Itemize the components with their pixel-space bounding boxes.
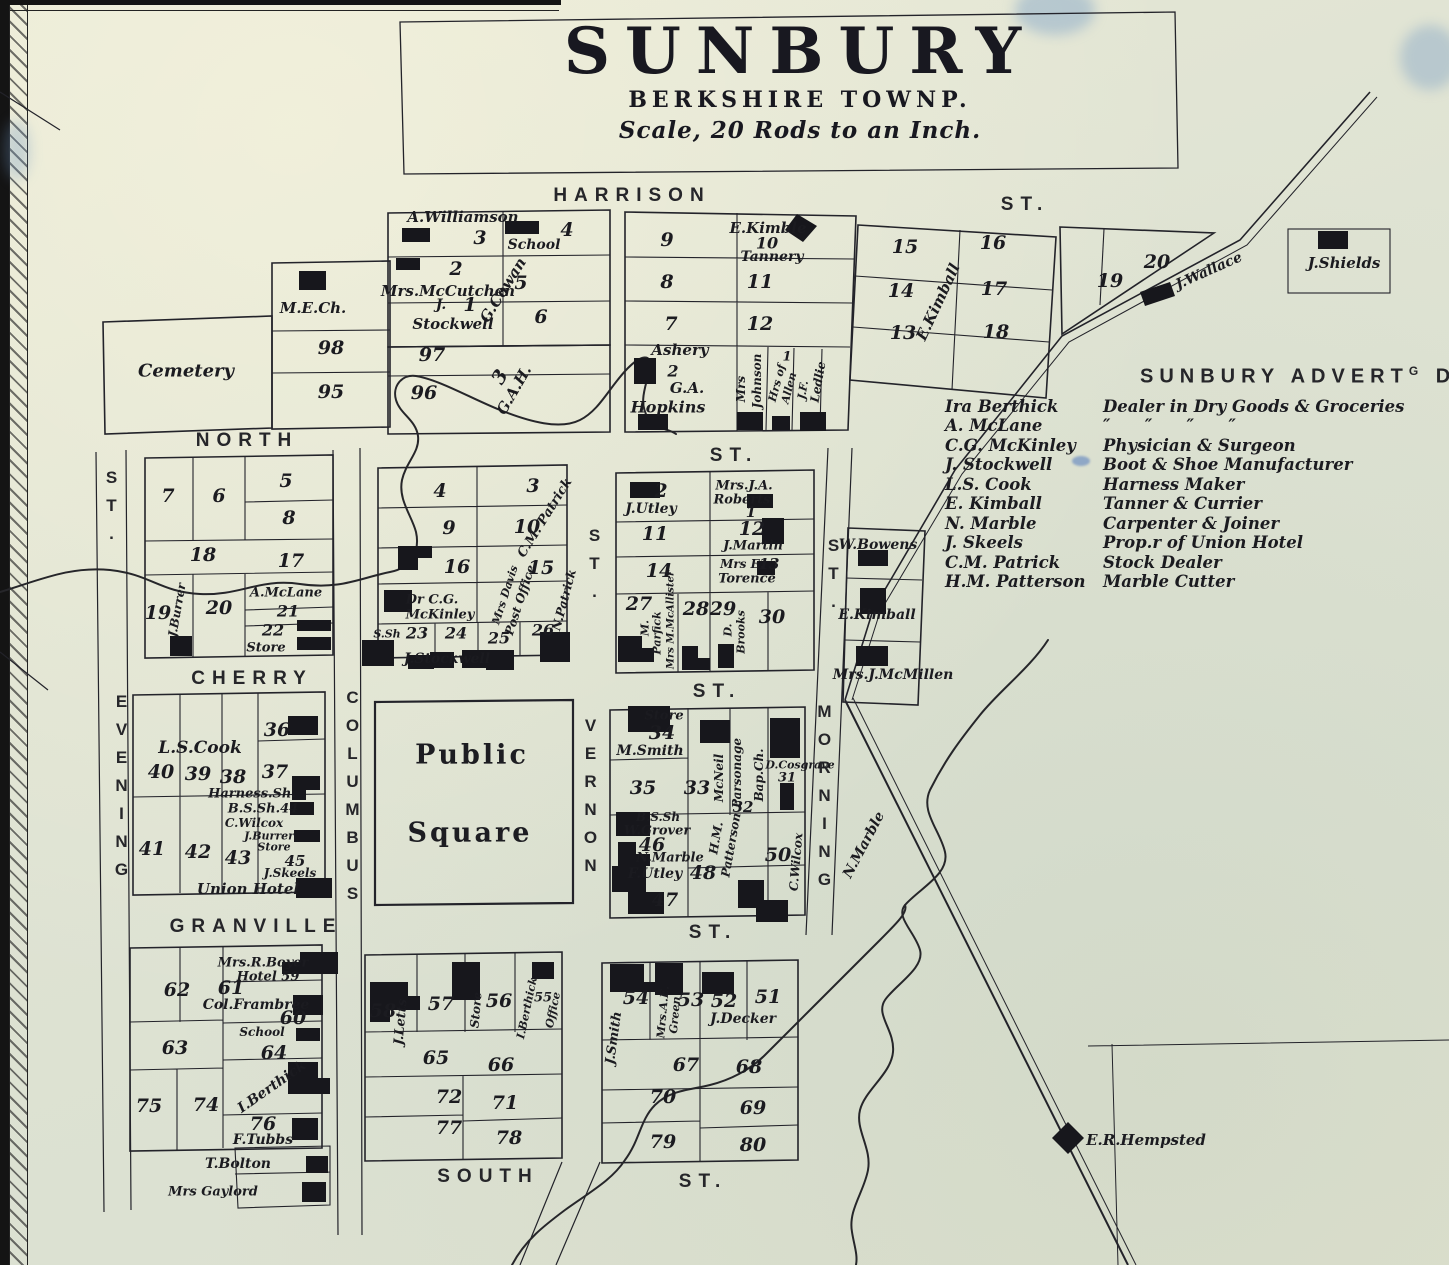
owner-label: B.S.Sh.44 xyxy=(228,802,298,817)
street-label: ST. xyxy=(693,681,741,703)
plat-map-page: { "title": { "name": "SUNBURY", "townshi… xyxy=(0,0,1449,1265)
lot-number: 7 xyxy=(664,313,677,335)
lot-number: 38 xyxy=(220,766,246,788)
owner-label: Mrs.J.A. xyxy=(715,479,772,494)
owner-label: J.Shields xyxy=(1308,254,1381,272)
lot-number: 17 xyxy=(278,550,304,572)
public-square-label: Square xyxy=(408,818,533,849)
advertiser-business: Prop.r of Union Hotel xyxy=(1103,533,1449,553)
owner-label: Bap.Ch. xyxy=(752,749,766,802)
lot-number: 18 xyxy=(983,321,1009,343)
owner-label: M.Smith xyxy=(616,743,683,759)
street-label: GRANVILLE xyxy=(170,916,343,938)
owner-label: Mrs M.McAllister xyxy=(666,571,677,669)
lot-number: 34 xyxy=(649,722,675,744)
owner-label: W.Bowens xyxy=(839,537,918,553)
lot-number: 24 xyxy=(445,624,467,643)
lot-number: 12 xyxy=(739,518,765,540)
advertiser-name: C.M. Patrick xyxy=(945,553,1103,573)
street-label: ST. xyxy=(584,526,604,610)
lot-number: 4 xyxy=(560,219,573,241)
lot-number: 43 xyxy=(225,847,251,869)
advertiser-name: J. Skeels xyxy=(945,533,1103,553)
lot-number: 6 xyxy=(534,306,547,328)
street-label: ST. xyxy=(101,468,121,552)
advertiser-name: A. McLane xyxy=(945,416,1103,436)
lot-number: 36 xyxy=(264,719,290,741)
advertiser-name: N. Marble xyxy=(945,514,1103,534)
directory-row: E. KimballTanner & Currier xyxy=(945,494,1449,514)
owner-label: Ashery xyxy=(651,341,708,359)
lot-number: 62 xyxy=(164,979,190,1001)
lot-number: 31 xyxy=(778,771,796,786)
lot-number: 30 xyxy=(759,606,785,628)
owner-label: School xyxy=(239,1025,284,1039)
lot-number: 16 xyxy=(980,232,1006,254)
owner-label: D.Cosgrave xyxy=(765,759,834,772)
owner-label: Parfick xyxy=(651,611,664,654)
lot-number: 9 xyxy=(442,517,455,539)
lot-number: 2 xyxy=(449,258,462,280)
lot-number: 69 xyxy=(740,1097,766,1119)
lot-number: 16 xyxy=(444,556,470,578)
lot-number: 19 xyxy=(1097,270,1123,292)
owner-label: Mrs xyxy=(734,376,748,402)
owner-label: Mrs.R.Boyer xyxy=(218,956,309,971)
owner-label: G.A. xyxy=(670,379,704,397)
lot-number: 72 xyxy=(436,1086,462,1108)
lot-number: 33 xyxy=(684,777,710,799)
lot-number: 66 xyxy=(488,1054,514,1076)
directory-row: J. StockwellBoot & Shoe Manufacturer xyxy=(945,455,1449,475)
lot-number: 1 xyxy=(463,294,476,316)
lot-number: 8 xyxy=(660,271,673,293)
owner-label: J. xyxy=(436,297,446,313)
lot-number: 67 xyxy=(673,1054,699,1076)
owner-label: B.S.Sh xyxy=(636,810,680,824)
directory-row: N. MarbleCarpenter & Joiner xyxy=(945,514,1449,534)
advertiser-business: ″ ″ ″ ″ xyxy=(1103,416,1449,436)
owner-label: Johnson xyxy=(750,354,764,409)
street-label: NORTH xyxy=(196,430,299,452)
public-square-label: Public xyxy=(415,740,529,771)
owner-label: Store xyxy=(246,641,285,656)
lot-number: 13 xyxy=(759,555,780,573)
lot-number: 64 xyxy=(261,1042,287,1064)
owner-label: Dr C.G. xyxy=(406,593,458,608)
directory-row: A. McLane″ ″ ″ ″ xyxy=(945,416,1449,436)
street-label: ST. xyxy=(710,445,758,467)
lot-number: 15 xyxy=(892,236,918,258)
lot-number: 3 xyxy=(526,475,539,497)
advertiser-business: Dealer in Dry Goods & Groceries xyxy=(1103,397,1449,417)
advertiser-name: E. Kimball xyxy=(945,494,1103,514)
lot-number: 74 xyxy=(193,1094,219,1116)
advertiser-business: Marble Cutter xyxy=(1103,572,1449,592)
lot-number: 3 xyxy=(473,227,486,249)
lot-number: 11 xyxy=(642,523,668,545)
lot-number: 1 xyxy=(782,350,791,365)
lot-number: 51 xyxy=(755,986,781,1008)
title-block: SUNBURY BERKSHIRE TOWNP. Scale, 20 Rods … xyxy=(420,18,1180,144)
lot-number: 14 xyxy=(888,280,914,302)
lot-number: 23 xyxy=(406,624,428,643)
owner-label: F.Utley xyxy=(628,866,682,882)
lot-number: 41 xyxy=(139,838,165,860)
lot-number: 6 xyxy=(212,485,225,507)
lot-number: 11 xyxy=(747,271,773,293)
lot-number: 17 xyxy=(981,278,1007,300)
lot-number: 35 xyxy=(630,777,656,799)
owner-label: Mrs E. xyxy=(720,557,764,571)
lot-number: 78 xyxy=(496,1127,522,1149)
street-label: CHERRY xyxy=(191,668,313,690)
lot-number: 50 xyxy=(765,844,791,866)
owner-label: J.Stockwell xyxy=(404,651,490,667)
advertiser-name: J. Stockwell xyxy=(945,455,1103,475)
town-name: SUNBURY xyxy=(420,18,1180,85)
lot-number: 22 xyxy=(262,621,284,640)
lot-number: 21 xyxy=(277,602,299,621)
owner-label: McKinley xyxy=(406,608,475,623)
owner-label: Harness.Sh. xyxy=(208,787,296,802)
directory-row: Ira BerthickDealer in Dry Goods & Grocer… xyxy=(945,397,1449,417)
lot-number: 52 xyxy=(711,990,737,1012)
owner-label: T.Bolton xyxy=(205,1156,271,1172)
lot-number: 95 xyxy=(318,381,344,403)
owner-label: McNeil xyxy=(712,754,726,802)
advertiser-name: Ira Berthick xyxy=(945,397,1103,417)
owner-label: Mrs.J.McMillen xyxy=(833,667,954,683)
advertiser-business: Carpenter & Joiner xyxy=(1103,514,1449,534)
owner-label: S.Sh xyxy=(373,628,400,641)
owner-label: Union Hotel xyxy=(197,880,299,898)
lot-number: 37 xyxy=(262,761,288,783)
owner-label: Hotel 59 xyxy=(237,970,300,985)
lot-number: 7 xyxy=(161,485,174,507)
lot-number: 4 xyxy=(433,480,446,502)
owner-label: Torence xyxy=(718,572,776,587)
owner-label: Brooks xyxy=(735,610,748,654)
lot-number: 75 xyxy=(136,1095,162,1117)
owner-label: Roberts xyxy=(713,493,770,508)
owner-label: E.Kimball xyxy=(838,607,915,623)
owner-label: Cemetery xyxy=(138,361,234,382)
owner-label: A.Williamson xyxy=(407,208,518,226)
lot-number: 39 xyxy=(185,763,211,785)
directory-heading: SUNBURY ADVERTG DIR xyxy=(945,364,1449,389)
advertiser-business: Tanner & Currier xyxy=(1103,494,1449,514)
owner-label: E.R.Hempsted xyxy=(1086,1131,1206,1149)
street-label: HARRISON xyxy=(553,185,710,207)
lot-number: 12 xyxy=(747,313,773,335)
lot-number: 68 xyxy=(736,1056,762,1078)
advertiser-business: Stock Dealer xyxy=(1103,553,1449,573)
directory-row: J. SkeelsProp.r of Union Hotel xyxy=(945,533,1449,553)
advertiser-name: L.S. Cook xyxy=(945,475,1103,495)
advertiser-business: Harness Maker xyxy=(1103,475,1449,495)
lot-number: 97 xyxy=(419,344,445,366)
directory-rows: Ira BerthickDealer in Dry Goods & Grocer… xyxy=(945,397,1449,592)
lot-number: 2 xyxy=(654,480,667,502)
lot-number: 8 xyxy=(282,507,295,529)
lot-number: 28 xyxy=(683,598,709,620)
lot-number: 5 xyxy=(279,470,292,492)
lot-number: 70 xyxy=(650,1086,676,1108)
owner-label: Tannery xyxy=(741,249,804,265)
directory-row: C.M. PatrickStock Dealer xyxy=(945,553,1449,573)
owner-label: J.Martin xyxy=(723,539,783,554)
lot-number: 58 xyxy=(370,1000,396,1022)
owner-label: F.Tubbs xyxy=(233,1132,293,1148)
street-label: VERNON xyxy=(580,716,600,884)
advertiser-business: Boot & Shoe Manufacturer xyxy=(1103,455,1449,475)
owner-label: Hopkins xyxy=(631,398,706,417)
lot-number: 98 xyxy=(318,337,344,359)
owner-label: C.Wilcox xyxy=(225,816,283,830)
lot-number: 47 xyxy=(652,889,678,911)
lot-number: 65 xyxy=(423,1047,449,1069)
lot-number: 53 xyxy=(678,989,704,1011)
owner-label: J.Decker xyxy=(710,1011,776,1027)
advertiser-name: C.G. McKinley xyxy=(945,436,1103,456)
map-canvas: SUNBURY BERKSHIRE TOWNP. Scale, 20 Rods … xyxy=(0,0,1449,1265)
lot-number: 71 xyxy=(492,1092,518,1114)
lot-number: 56 xyxy=(486,990,512,1012)
lot-number: 20 xyxy=(206,597,232,619)
lot-number: 9 xyxy=(660,229,673,251)
street-label: SOUTH xyxy=(437,1166,539,1188)
scale-note: Scale, 20 Rods to an Inch. xyxy=(420,117,1180,144)
owner-label: A.McLane xyxy=(250,586,322,601)
owner-label: School xyxy=(508,237,561,253)
lot-number: 77 xyxy=(436,1117,462,1139)
lot-number: 57 xyxy=(428,993,454,1015)
lot-number: 96 xyxy=(411,382,437,404)
lot-number: 42 xyxy=(185,841,211,863)
owner-label: Stockwell xyxy=(412,315,493,333)
lot-number: 79 xyxy=(650,1131,676,1153)
owner-label: D. xyxy=(722,624,735,637)
lot-number: 20 xyxy=(1144,251,1170,273)
street-label: COLUMBUS xyxy=(342,688,362,912)
owner-label: L.S.Cook xyxy=(158,738,241,758)
lot-number: 29 xyxy=(710,598,736,620)
advertiser-business: Physician & Surgeon xyxy=(1103,436,1449,456)
lot-number: 2 xyxy=(667,362,678,381)
lot-number: 40 xyxy=(148,761,174,783)
street-label: ST. xyxy=(1001,194,1049,216)
lot-number: 80 xyxy=(740,1134,766,1156)
directory-row: L.S. CookHarness Maker xyxy=(945,475,1449,495)
lot-number: 18 xyxy=(190,544,216,566)
directory-row: H.M. PattersonMarble Cutter xyxy=(945,572,1449,592)
owner-label: Mrs Gaylord xyxy=(168,1185,258,1200)
street-label: ST. xyxy=(679,1171,727,1193)
owner-label: J.Utley xyxy=(625,501,676,517)
advertiser-name: H.M. Patterson xyxy=(945,572,1103,592)
street-label: ST. xyxy=(689,922,737,944)
lot-number: 48 xyxy=(690,862,716,884)
township-name: BERKSHIRE TOWNP. xyxy=(420,87,1180,113)
lot-number: 27 xyxy=(626,593,652,615)
lot-number: 63 xyxy=(162,1037,188,1059)
street-label: EVENING xyxy=(111,692,131,888)
lot-number: 54 xyxy=(623,987,649,1009)
owner-label: M.E.Ch. xyxy=(280,299,347,317)
street-label: MORNING xyxy=(814,702,834,898)
lot-number: 61 xyxy=(218,977,244,999)
directory-row: C.G. McKinleyPhysician & Surgeon xyxy=(945,436,1449,456)
advertiser-directory: SUNBURY ADVERTG DIR Ira BerthickDealer i… xyxy=(945,364,1449,592)
owner-label: J.Skeels xyxy=(264,866,317,880)
